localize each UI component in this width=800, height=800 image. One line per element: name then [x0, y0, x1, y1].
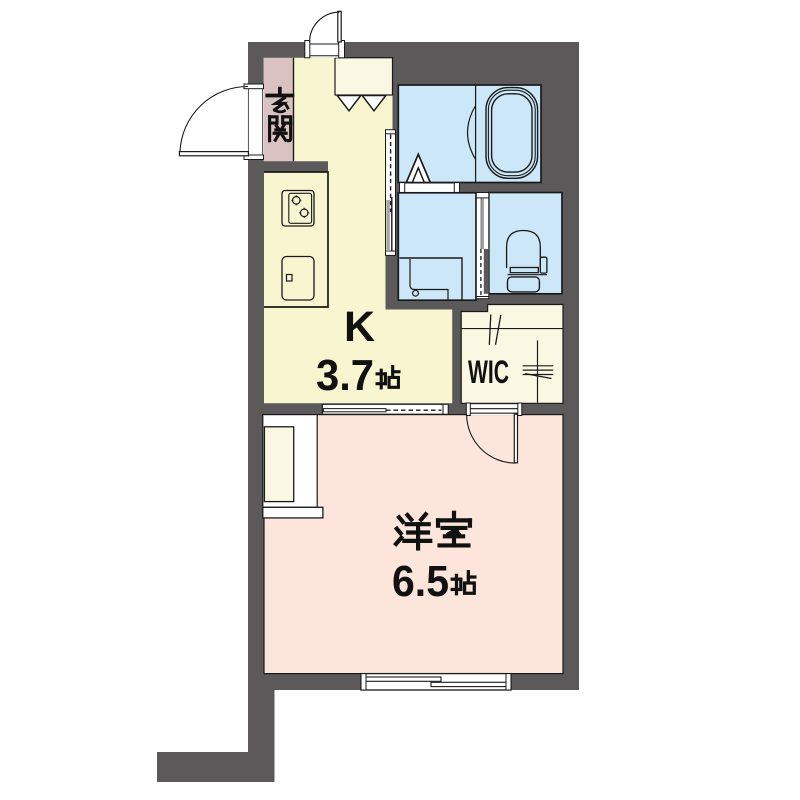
svg-text:K: K: [344, 303, 375, 351]
svg-text:3.7: 3.7: [316, 351, 374, 400]
svg-text:WIC: WIC: [468, 354, 509, 390]
svg-text:6.5: 6.5: [392, 557, 449, 606]
